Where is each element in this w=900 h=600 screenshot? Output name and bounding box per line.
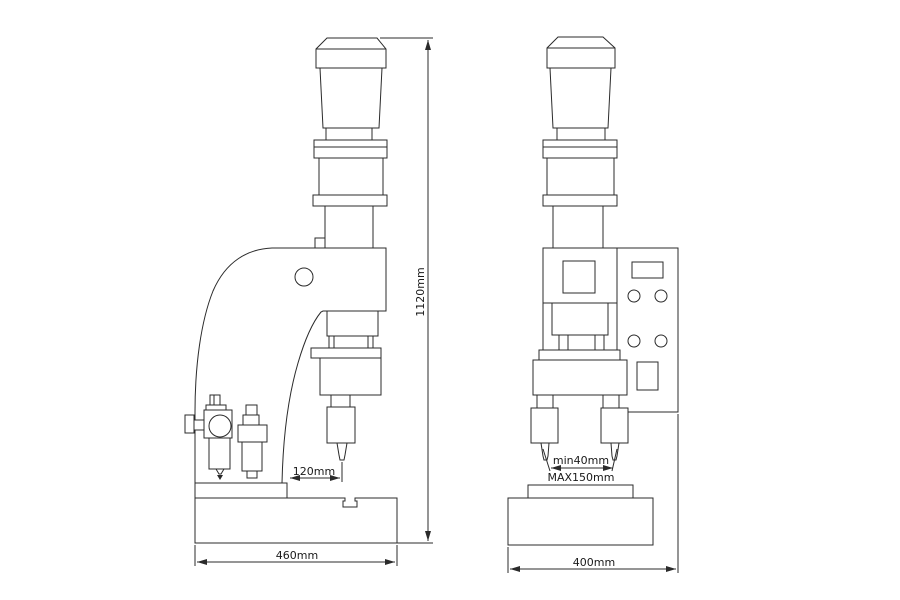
mid-cylinder	[547, 158, 614, 195]
dim-label-1120mm: 1120mm	[414, 267, 427, 316]
cylinder-stack-side	[313, 38, 387, 248]
front-view: min40mm MAX150mm 400mm	[508, 37, 678, 573]
guide-stub-right	[595, 335, 604, 350]
panel-button	[628, 335, 640, 347]
panel-display	[632, 262, 663, 278]
inlet-pipe	[193, 420, 204, 430]
coupling-band-1	[543, 140, 617, 158]
dimension-120mm: 120mm	[290, 462, 342, 482]
side-view: 120mm 460mm 1120mm	[185, 38, 433, 566]
top-cap	[316, 38, 386, 68]
frame-hole	[295, 268, 313, 286]
guide-stub-left	[559, 335, 568, 350]
dim-label-120mm: 120mm	[293, 465, 335, 478]
ram-crossblock	[533, 360, 627, 395]
dimension-tool-gap: min40mm MAX150mm	[543, 449, 617, 484]
regulator-knob	[210, 395, 220, 405]
coupling-band-2	[543, 195, 617, 206]
lubricator-stem	[243, 415, 259, 425]
ram-guide	[327, 311, 378, 336]
upper-neck	[557, 128, 605, 140]
machine-base-side	[195, 483, 397, 543]
ram-assembly-front	[531, 350, 628, 460]
tool-neck-left	[537, 395, 553, 408]
guide-stub-right	[368, 336, 373, 348]
dim-label-min40mm: min40mm	[553, 454, 609, 467]
head-window	[563, 261, 595, 293]
lubricator-tip	[247, 471, 257, 478]
top-cap	[547, 37, 615, 68]
tool-tip	[337, 443, 347, 460]
pressure-gauge	[209, 415, 231, 437]
ram-flange	[311, 348, 381, 358]
dim-label-400mm: 400mm	[573, 556, 615, 569]
upper-neck	[326, 128, 372, 140]
tool-holder-right	[601, 408, 628, 443]
tool-neck	[331, 395, 350, 407]
coupling-band-2	[313, 195, 387, 206]
tool-tip-left	[541, 443, 549, 460]
lower-neck	[553, 206, 603, 248]
base-block-side	[195, 498, 397, 543]
lubricator-body	[238, 425, 267, 442]
panel-button	[655, 290, 667, 302]
mid-cylinder	[319, 158, 383, 195]
panel-switch	[637, 362, 658, 390]
technical-drawing: 120mm 460mm 1120mm	[0, 0, 900, 600]
regulator-knob-base	[206, 405, 226, 410]
head-block-front	[543, 248, 617, 350]
ram-flange	[539, 350, 620, 360]
filter-bowl	[209, 438, 230, 469]
lubricator-bowl	[242, 442, 262, 471]
tool-neck-right	[603, 395, 619, 408]
lubricator-knob	[246, 405, 257, 415]
ram-guide-front	[552, 303, 608, 335]
dim-label-max150mm: MAX150mm	[548, 471, 615, 484]
dimension-1120mm: 1120mm	[380, 38, 433, 543]
guide-stub-left	[329, 336, 334, 348]
tool-holder	[327, 407, 355, 443]
panel-button	[655, 335, 667, 347]
drawing-canvas: 120mm 460mm 1120mm	[0, 0, 900, 600]
upper-cylinder	[320, 68, 382, 128]
pedestal-front	[528, 485, 633, 498]
mount-tab	[315, 238, 325, 248]
ram-cylinder	[320, 358, 381, 395]
pedestal-side	[195, 483, 287, 498]
ram-assembly-side	[311, 311, 381, 460]
lower-neck	[325, 206, 373, 248]
tool-holder-left	[531, 408, 558, 443]
panel-button	[628, 290, 640, 302]
dim-label-460mm: 460mm	[276, 549, 318, 562]
dimension-460mm: 460mm	[195, 545, 397, 566]
coupling-band-1	[314, 140, 387, 158]
machine-base-front	[508, 485, 653, 545]
inlet-fitting	[185, 415, 194, 433]
upper-cylinder	[550, 68, 611, 128]
cylinder-stack-front	[543, 37, 617, 248]
base-block-front	[508, 498, 653, 545]
